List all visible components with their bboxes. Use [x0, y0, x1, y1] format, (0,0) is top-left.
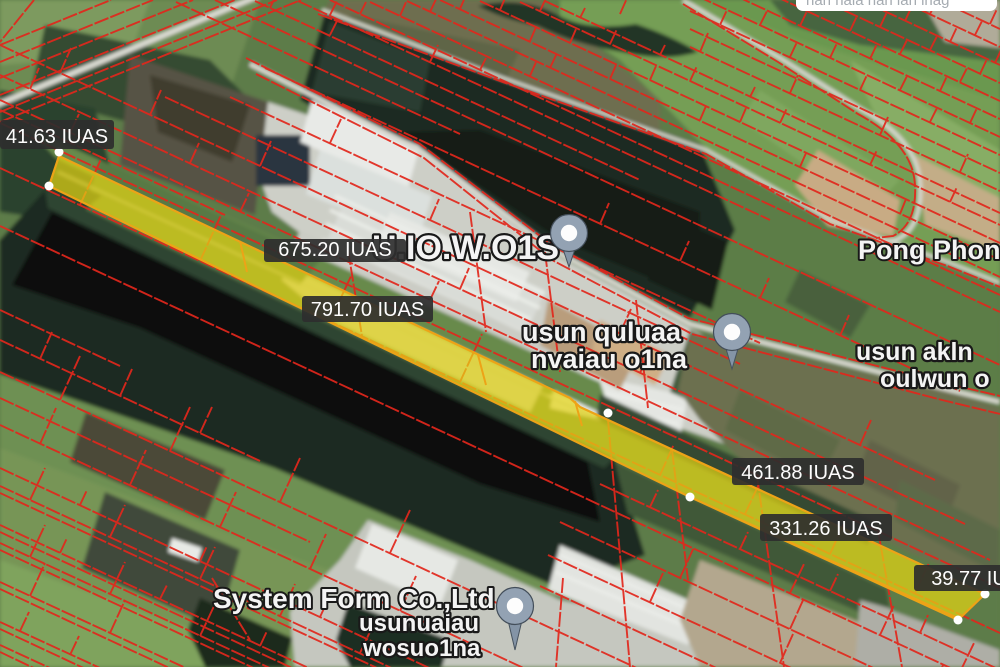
svg-text:461.88 IUAS: 461.88 IUAS — [741, 462, 854, 484]
svg-text:wosuo1na: wosuo1na — [362, 635, 481, 662]
svg-text:usun quluaa: usun quluaa — [522, 317, 682, 347]
svg-text:331.26 IUAS: 331.26 IUAS — [769, 518, 882, 540]
svg-text:41.63 IUAS: 41.63 IUAS — [6, 126, 108, 148]
svg-text:675.20 IUAS: 675.20 IUAS — [278, 239, 391, 261]
svg-text:39.77 IU: 39.77 IU — [931, 568, 1000, 590]
svg-text:System Form Co.,Ltd: System Form Co.,Ltd — [213, 583, 495, 614]
svg-text:oulwun o: oulwun o — [880, 365, 990, 393]
svg-text:Pong Phone: Pong Phone — [858, 235, 1000, 265]
svg-text:791.70 IUAS: 791.70 IUAS — [311, 299, 424, 321]
svg-text:nan naia nan ian inag: nan naia nan ian inag — [806, 0, 949, 9]
svg-text:usunuaiau: usunuaiau — [359, 610, 479, 637]
svg-text:usun akln: usun akln — [856, 338, 973, 366]
svg-text:nvaiau o1na: nvaiau o1na — [531, 344, 688, 374]
